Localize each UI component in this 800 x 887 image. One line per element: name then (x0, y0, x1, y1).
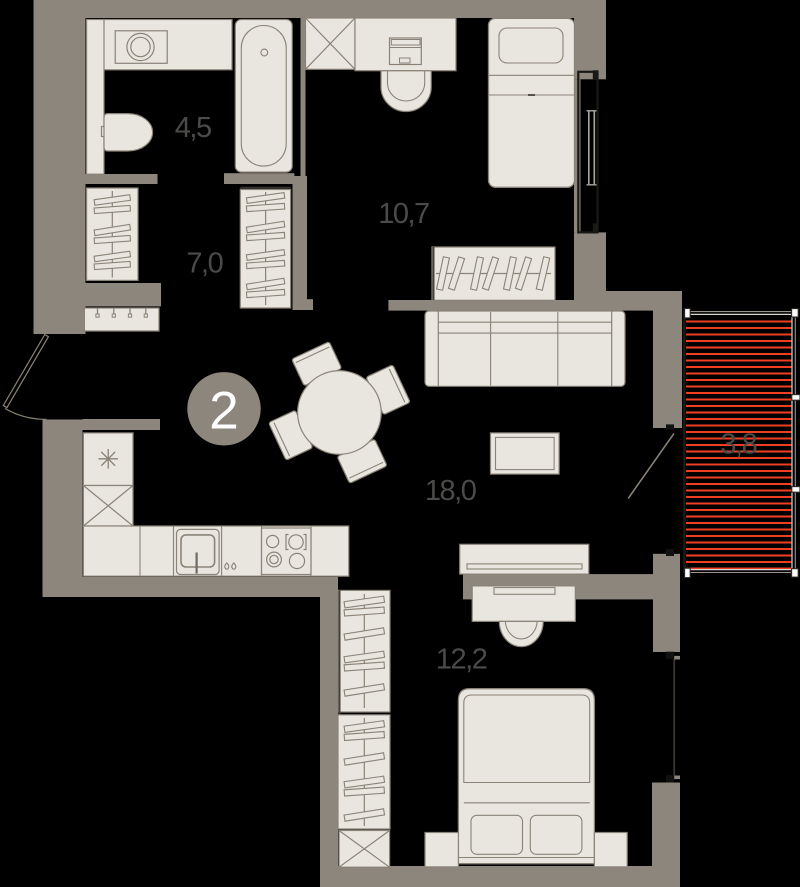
svg-text:18,0: 18,0 (425, 475, 476, 507)
svg-text:12,2: 12,2 (436, 644, 487, 676)
svg-text:3,8: 3,8 (720, 428, 756, 460)
svg-text:10,7: 10,7 (378, 198, 429, 230)
svg-text:7,0: 7,0 (186, 248, 222, 280)
svg-text:4,5: 4,5 (175, 112, 211, 144)
svg-text:2: 2 (209, 382, 238, 441)
